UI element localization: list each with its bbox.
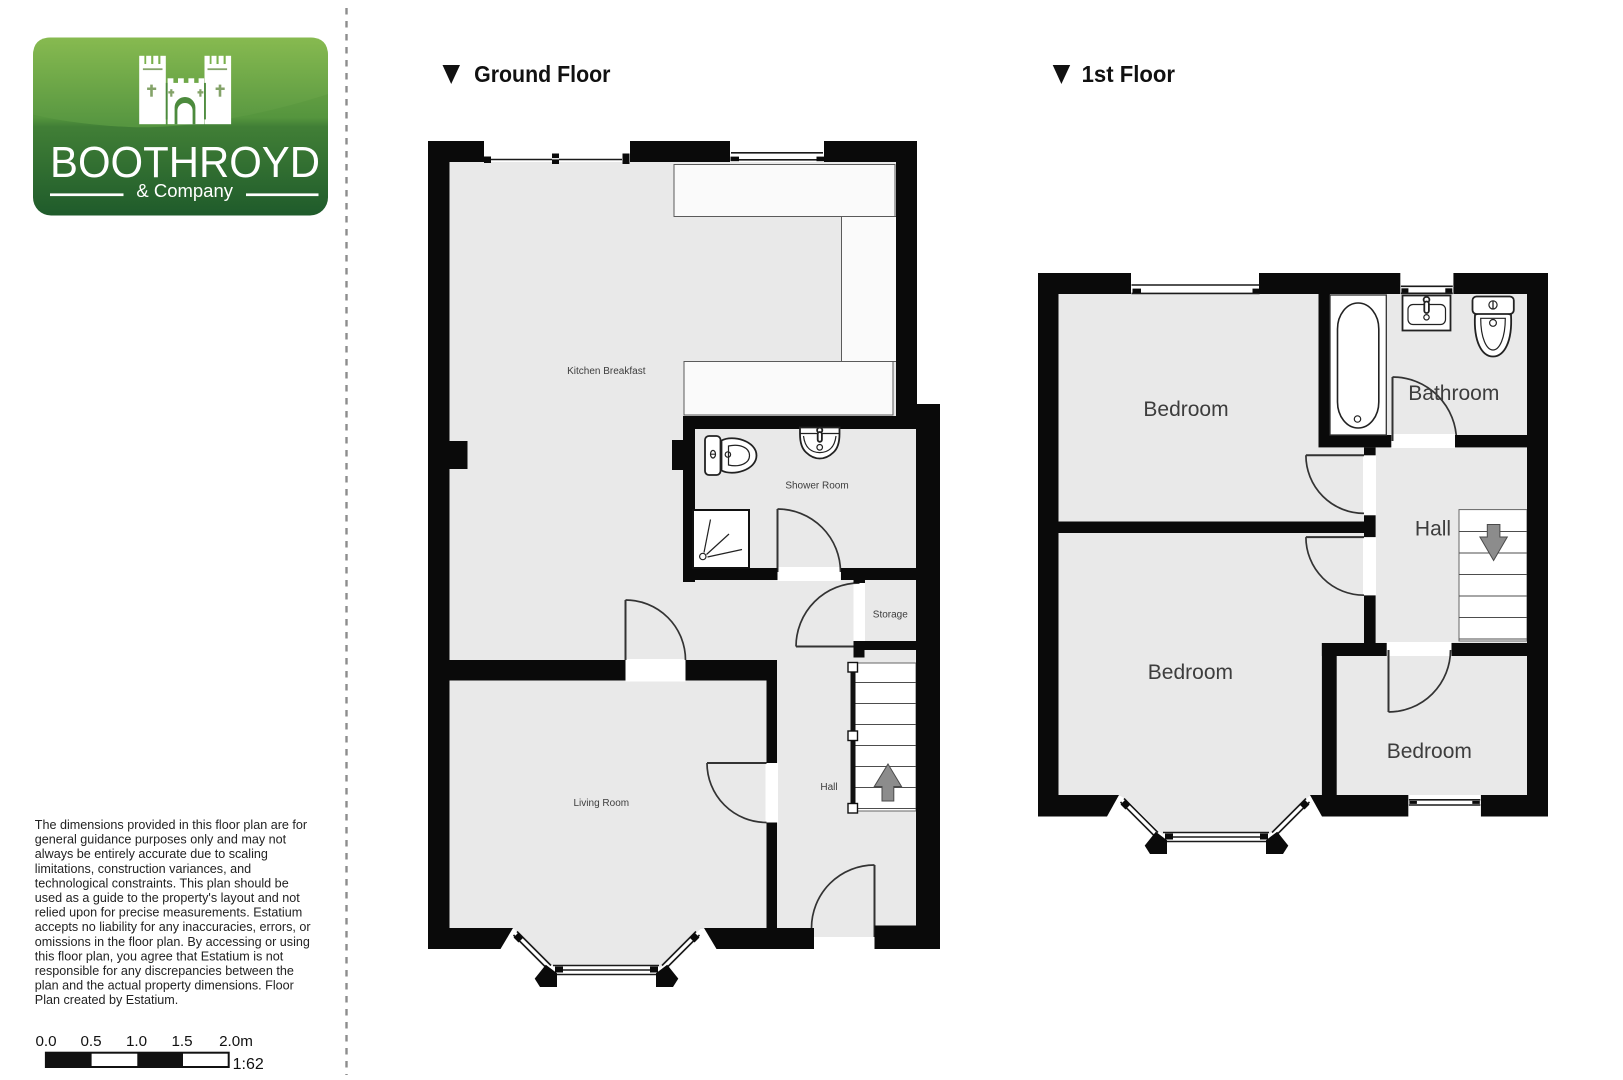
svg-text:always be entirely accurate du: always be entirely accurate due to scali… [35,847,268,861]
svg-text:plan and the actual property d: plan and the actual property dimensions.… [35,979,294,993]
svg-text:Storage: Storage [873,610,908,621]
svg-text:0.0: 0.0 [35,1033,56,1050]
svg-text:Kitchen Breakfast: Kitchen Breakfast [567,366,646,377]
svg-text:0.5: 0.5 [80,1033,101,1050]
svg-text:Hall: Hall [1415,518,1451,541]
svg-text:accepts no liability for any i: accepts no liability for any inaccuracie… [35,920,311,934]
svg-text:Hall: Hall [820,782,837,793]
svg-text:used as a guide to the propert: used as a guide to the property's layout… [35,891,300,905]
svg-text:2.0m: 2.0m [219,1033,253,1050]
svg-text:1.0: 1.0 [126,1033,147,1050]
svg-text:& Company: & Company [136,180,233,201]
svg-text:1:62: 1:62 [233,1056,264,1073]
svg-text:1.5: 1.5 [171,1033,192,1050]
svg-text:Ground Floor: Ground Floor [474,61,610,87]
svg-text:this floor plan, you agree tha: this floor plan, you agree that Estatium… [35,949,284,963]
svg-text:Bedroom: Bedroom [1387,740,1472,763]
svg-text:1st Floor: 1st Floor [1082,61,1175,87]
svg-text:Bedroom: Bedroom [1148,661,1233,684]
svg-text:technological constraints. Thi: technological constraints. This plan sho… [35,876,289,890]
svg-text:general guidance purposes only: general guidance purposes only and may n… [35,833,287,847]
svg-text:Living Room: Living Room [574,798,630,809]
svg-text:Bathroom: Bathroom [1408,382,1499,405]
svg-text:responsible for any discrepanc: responsible for any discrepancies betwee… [35,964,294,978]
svg-text:Shower Room: Shower Room [785,481,848,492]
svg-text:The dimensions provided in thi: The dimensions provided in this floor pl… [35,818,307,832]
svg-text:omissions in the floor plan. B: omissions in the floor plan. By accessin… [35,935,310,949]
svg-text:limitations, construction vari: limitations, construction variances, and [35,862,251,876]
svg-text:Bedroom: Bedroom [1143,398,1228,421]
svg-text:Plan created by Estatium.: Plan created by Estatium. [35,993,179,1007]
svg-text:relied upon for precise measur: relied upon for precise measurements. Es… [35,906,302,920]
